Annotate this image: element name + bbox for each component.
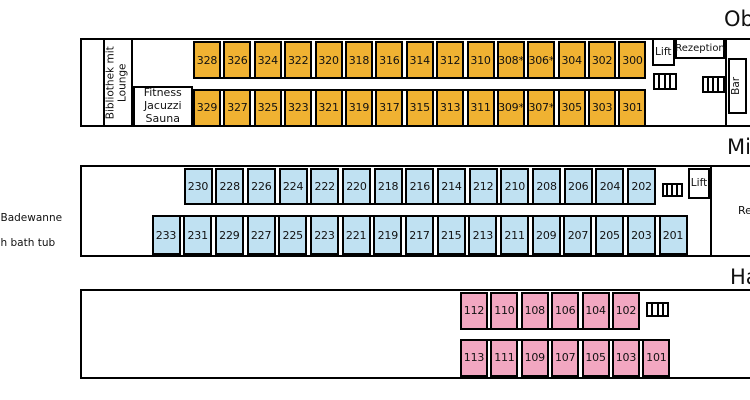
cabin-108: 108 [521, 292, 549, 331]
legend-badewanne: Badewanne [1, 212, 63, 224]
cabin-318: 318 [345, 41, 373, 79]
cabin-305: 305 [558, 89, 586, 128]
cabin-113: 113 [460, 339, 488, 377]
cabin-211: 211 [500, 215, 529, 255]
cabin-302: 302 [588, 41, 616, 79]
reception-room: Rezeption [675, 38, 725, 59]
cabin-310: 310 [467, 41, 495, 79]
cabin-row-hauptdeck-0: 112110108106104102 [460, 292, 640, 331]
fitness-jacuzzi-sauna-room: Fitness Jacuzzi Sauna [133, 86, 194, 128]
stairs-icon [646, 302, 669, 317]
cabin-107: 107 [551, 339, 579, 377]
cabin-309: 309* [497, 89, 525, 128]
cabin-218: 218 [374, 168, 403, 206]
cabin-216: 216 [405, 168, 434, 206]
cabin-311: 311 [467, 89, 495, 128]
cabin-323: 323 [284, 89, 312, 128]
cabin-201: 201 [659, 215, 688, 255]
lift-oberdeck-label: Lift [655, 46, 671, 58]
stairs-icon [653, 73, 677, 90]
cabin-229: 229 [215, 215, 244, 255]
cabin-206: 206 [564, 168, 593, 206]
cabin-327: 327 [223, 89, 251, 128]
cabin-319: 319 [345, 89, 373, 128]
cabin-204: 204 [595, 168, 624, 206]
library-lounge-label: Bibliothek mit Lounge [106, 46, 130, 119]
cabin-105: 105 [582, 339, 610, 377]
cabin-109: 109 [521, 339, 549, 377]
cabin-321: 321 [315, 89, 343, 128]
cabin-315: 315 [406, 89, 434, 128]
cabin-223: 223 [310, 215, 339, 255]
deck-label-hauptdeck: Ha [730, 265, 750, 289]
cabin-106: 106 [551, 292, 579, 331]
cabin-326: 326 [223, 41, 251, 79]
deck-label-mitteldeck: Mi [727, 135, 750, 159]
mitteldeck-divider [710, 165, 712, 257]
cabin-219: 219 [373, 215, 402, 255]
reception-label: Rezeption [675, 43, 725, 54]
cabin-110: 110 [490, 292, 518, 331]
cabin-313: 313 [436, 89, 464, 128]
cabin-215: 215 [437, 215, 466, 255]
bar-label: Bar [731, 77, 743, 95]
deck-label-oberdeck: Ob [724, 7, 750, 31]
library-lounge-room: Bibliothek mit Lounge [103, 38, 133, 128]
stairs-icon [662, 183, 684, 197]
cabin-101: 101 [642, 339, 670, 377]
lift-oberdeck: Lift [652, 38, 676, 66]
cabin-112: 112 [460, 292, 488, 331]
cabin-205: 205 [595, 215, 624, 255]
fitness-jacuzzi-sauna-label: Fitness Jacuzzi Sauna [144, 87, 182, 125]
cabin-228: 228 [215, 168, 244, 206]
cabin-212: 212 [469, 168, 498, 206]
cabin-202: 202 [627, 168, 656, 206]
cabin-320: 320 [315, 41, 343, 79]
cabin-104: 104 [582, 292, 610, 331]
cabin-233: 233 [152, 215, 181, 255]
cabin-329: 329 [193, 89, 221, 128]
cabin-row-hauptdeck-1: 113111109107105103101 [460, 339, 670, 377]
cabin-304: 304 [558, 41, 586, 79]
cabin-322: 322 [284, 41, 312, 79]
cabin-111: 111 [490, 339, 518, 377]
cabin-325: 325 [254, 89, 282, 128]
cabin-209: 209 [532, 215, 561, 255]
cabin-208: 208 [532, 168, 561, 206]
cabin-324: 324 [254, 41, 282, 79]
cabin-301: 301 [618, 89, 646, 128]
cabin-221: 221 [342, 215, 371, 255]
cabin-row-oberdeck-0: 328326324322320318316314312310308*306*30… [193, 41, 646, 79]
lift-mitteldeck-label: Lift [691, 177, 707, 189]
bar-room: Bar [728, 58, 748, 114]
cabin-207: 207 [563, 215, 592, 255]
cabin-303: 303 [588, 89, 616, 128]
deck-plan: Ob Bibliothek mit Lounge Fitness Jacuzzi… [0, 0, 750, 400]
cabin-row-mitteldeck-0: 2302282262242222202182162142122102082062… [184, 168, 657, 206]
stairs-icon [702, 76, 725, 93]
cabin-220: 220 [342, 168, 371, 206]
cabin-226: 226 [247, 168, 276, 206]
cabin-314: 314 [406, 41, 434, 79]
cabin-328: 328 [193, 41, 221, 79]
cabin-224: 224 [279, 168, 308, 206]
cabin-225: 225 [278, 215, 307, 255]
cabin-312: 312 [436, 41, 464, 79]
cabin-214: 214 [437, 168, 466, 206]
cabin-217: 217 [405, 215, 434, 255]
cabin-230: 230 [184, 168, 213, 206]
cabin-row-mitteldeck-1: 2332312292272252232212192172152132112092… [152, 215, 688, 255]
cabin-222: 222 [310, 168, 339, 206]
cabin-210: 210 [500, 168, 529, 206]
cabin-316: 316 [375, 41, 403, 79]
lift-mitteldeck: Lift [688, 168, 710, 199]
cabin-103: 103 [612, 339, 640, 377]
cabin-231: 231 [183, 215, 212, 255]
legend-bathtub: h bath tub [1, 237, 56, 249]
cabin-308: 308* [497, 41, 525, 79]
cabin-213: 213 [468, 215, 497, 255]
cabin-227: 227 [247, 215, 276, 255]
cabin-317: 317 [375, 89, 403, 128]
restaurant-label: Re [738, 204, 750, 217]
cabin-row-oberdeck-1: 329327325323321319317315313311309*307*30… [193, 89, 646, 128]
cabin-102: 102 [612, 292, 640, 331]
cabin-203: 203 [627, 215, 656, 255]
cabin-300: 300 [618, 41, 646, 79]
cabin-307: 307* [527, 89, 555, 128]
cabin-306: 306* [527, 41, 555, 79]
